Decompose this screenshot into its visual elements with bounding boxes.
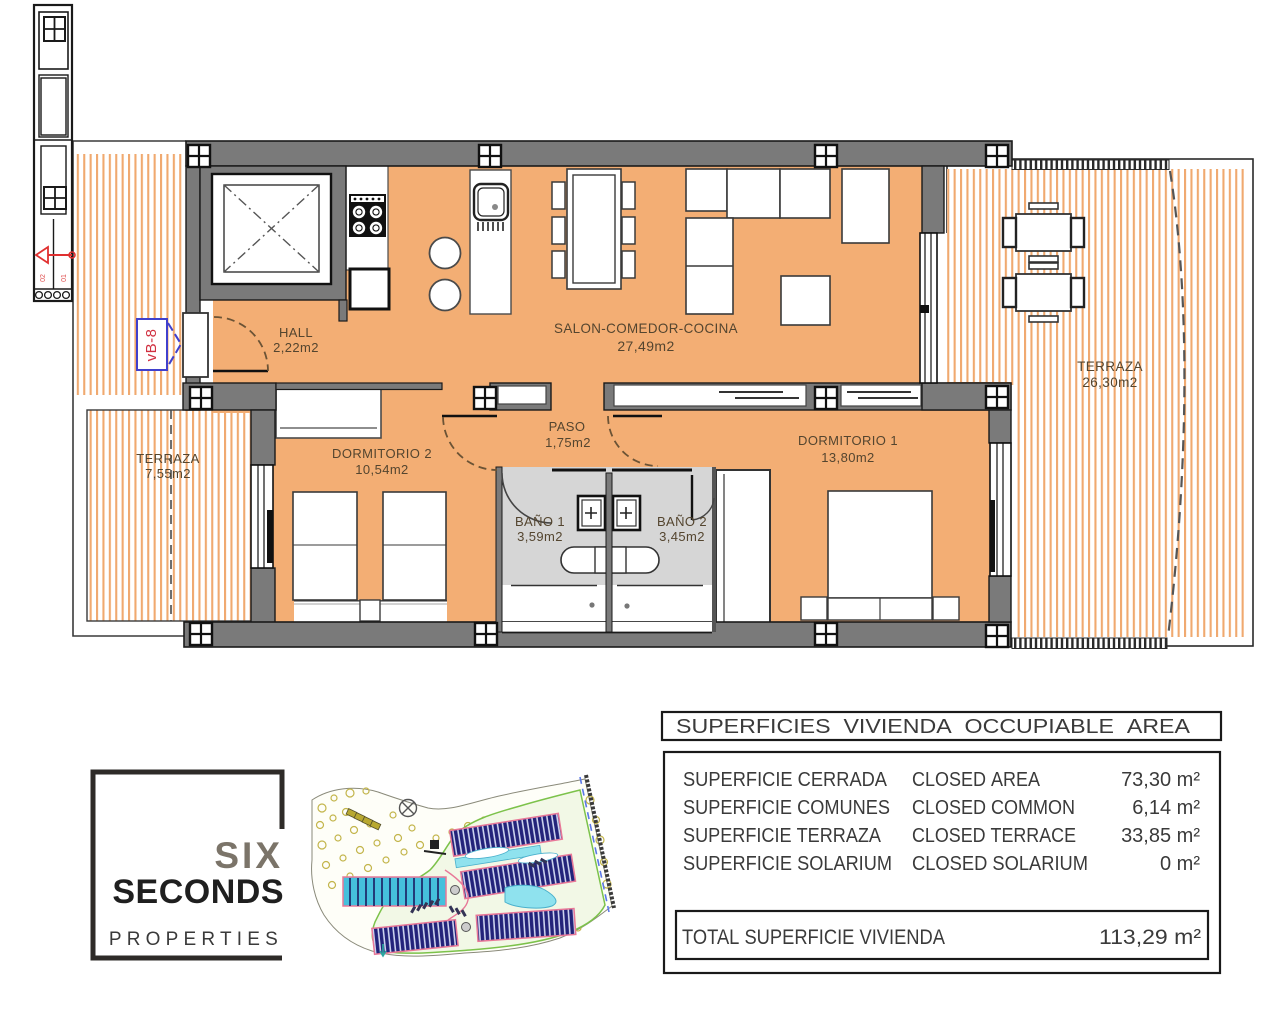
svg-text:10,54m2: 10,54m2 xyxy=(355,462,408,477)
svg-text:02: 02 xyxy=(40,274,47,282)
svg-text:73,30 m²: 73,30 m² xyxy=(1121,769,1200,791)
svg-text:SIX: SIX xyxy=(214,835,283,876)
svg-text:SUPERFICIE COMUNES: SUPERFICIE COMUNES xyxy=(683,797,890,819)
svg-text:vB-8: vB-8 xyxy=(143,329,160,362)
svg-text:SUPERFICIES VIVIENDA OCCUPIA: SUPERFICIES VIVIENDA OCCUPIABLE AREA xyxy=(676,715,1190,738)
svg-text:26,30m2: 26,30m2 xyxy=(1082,375,1137,390)
svg-text:27,49m2: 27,49m2 xyxy=(617,338,674,354)
svg-text:PROPERTIES: PROPERTIES xyxy=(109,929,283,950)
svg-text:33,85 m²: 33,85 m² xyxy=(1121,825,1200,847)
svg-text:BAÑO 2: BAÑO 2 xyxy=(657,514,707,529)
svg-text:SUPERFICIE TERRAZA: SUPERFICIE TERRAZA xyxy=(683,825,882,847)
svg-text:SALON-COMEDOR-COCINA: SALON-COMEDOR-COCINA xyxy=(554,320,738,336)
svg-text:TERRAZA: TERRAZA xyxy=(136,451,199,466)
svg-text:SECONDS: SECONDS xyxy=(112,873,284,911)
svg-text:0 m²: 0 m² xyxy=(1160,853,1200,875)
svg-text:7,55m2: 7,55m2 xyxy=(145,466,191,481)
svg-text:DORMITORIO 1: DORMITORIO 1 xyxy=(798,433,898,448)
svg-text:SUPERFICIE SOLARIUM: SUPERFICIE SOLARIUM xyxy=(683,853,892,875)
svg-text:CLOSED AREA: CLOSED AREA xyxy=(912,769,1041,791)
svg-text:13,80m2: 13,80m2 xyxy=(821,450,874,465)
svg-text:CLOSED SOLARIUM: CLOSED SOLARIUM xyxy=(912,853,1088,875)
svg-text:3,59m2: 3,59m2 xyxy=(517,529,563,544)
svg-text:DORMITORIO 2: DORMITORIO 2 xyxy=(332,446,432,461)
svg-text:PASO: PASO xyxy=(549,419,586,434)
svg-text:BAÑO 1: BAÑO 1 xyxy=(515,514,565,529)
svg-text:2,22m2: 2,22m2 xyxy=(273,340,319,355)
svg-text:TOTAL SUPERFICIE VIVIENDA: TOTAL SUPERFICIE VIVIENDA xyxy=(682,926,945,949)
svg-text:HALL: HALL xyxy=(279,325,313,340)
svg-text:SUPERFICIE CERRADA: SUPERFICIE CERRADA xyxy=(683,769,888,791)
svg-text:3,45m2: 3,45m2 xyxy=(659,529,705,544)
svg-text:TERRAZA: TERRAZA xyxy=(1077,359,1143,374)
svg-text:113,29 m²: 113,29 m² xyxy=(1099,926,1201,949)
svg-text:01: 01 xyxy=(61,274,68,282)
svg-text:1,75m2: 1,75m2 xyxy=(545,435,591,450)
svg-text:6,14 m²: 6,14 m² xyxy=(1132,797,1200,819)
svg-text:CLOSED COMMON: CLOSED COMMON xyxy=(912,797,1075,819)
svg-text:CLOSED TERRACE: CLOSED TERRACE xyxy=(912,825,1076,847)
